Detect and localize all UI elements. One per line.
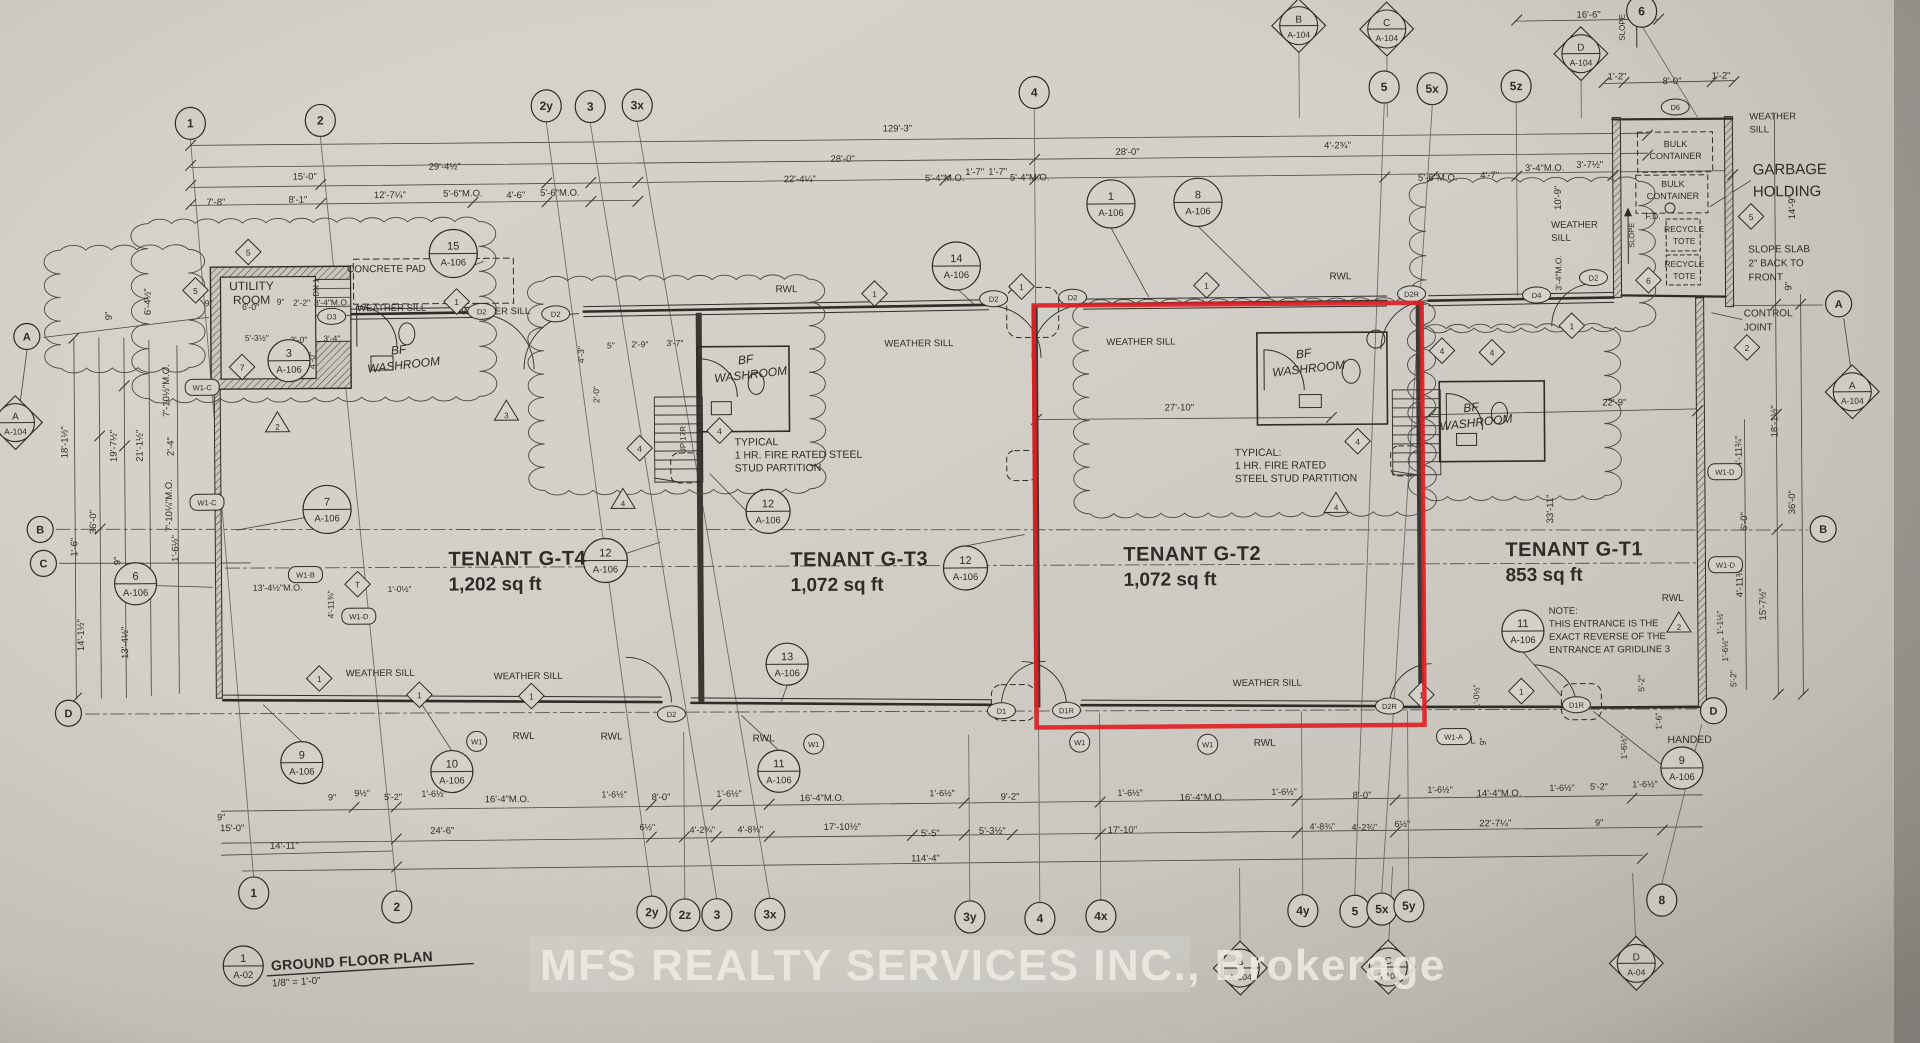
watermark: MFS REALTY SERVICES INC., Brokerage <box>530 936 1446 992</box>
photo-vignette <box>0 0 1920 1043</box>
watermark-text: MFS REALTY SERVICES INC., Brokerage <box>540 941 1446 990</box>
floor-plan-photo: 129'-3"29'-4½"15'-0"28'-0"28'-0"4'-2¾"7'… <box>0 0 1920 1043</box>
floor-plan-svg: 129'-3"29'-4½"15'-0"28'-0"28'-0"4'-2¾"7'… <box>0 0 1920 1043</box>
